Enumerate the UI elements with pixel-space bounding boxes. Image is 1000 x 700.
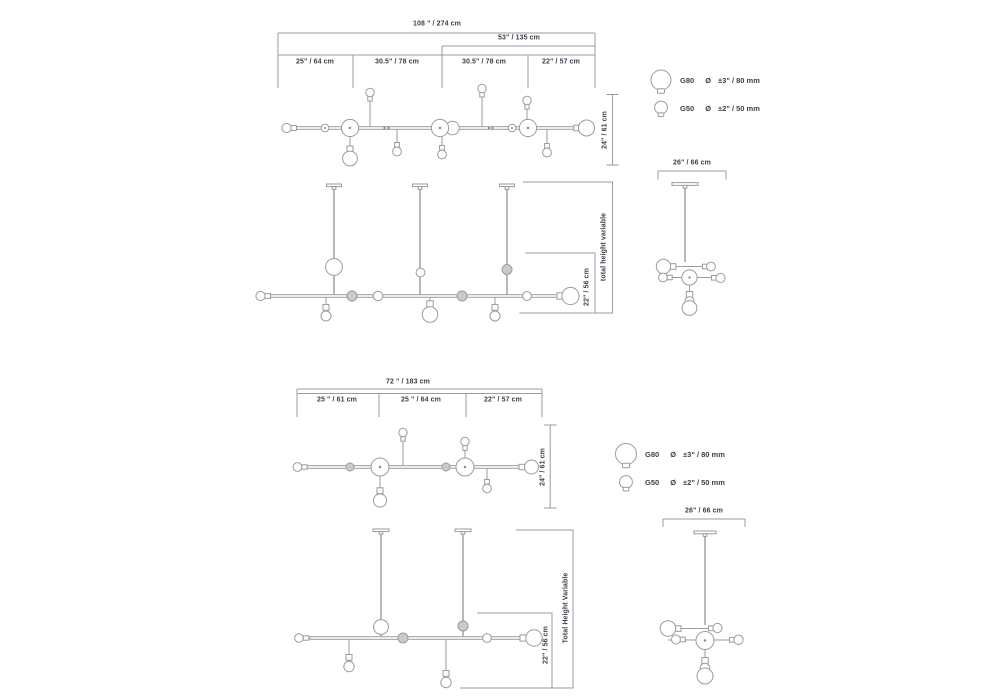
dim-depth-b: 24" / 61 cm: [540, 448, 547, 486]
g50-label: G50: [645, 478, 659, 487]
dim-side-width-a: 26" / 66 cm: [673, 160, 711, 167]
legend-row-g50: G50 Ø ±2" / 50 mm: [645, 476, 725, 488]
g80-size: ±3" / 80 mm: [718, 76, 760, 85]
diameter-symbol: Ø: [670, 478, 676, 487]
dimension-lines-top-a: [278, 33, 619, 165]
dim-drop-b: 22" / 56 cm: [543, 626, 550, 664]
g50-size: ±2" / 50 mm: [683, 478, 725, 487]
dim-segment-b-3: 22" / 57 cm: [484, 397, 522, 404]
dim-height-note-b: Total Height Variable: [563, 573, 570, 644]
dim-segment-a-2: 30.5" / 78 cm: [375, 59, 419, 66]
g50-bulb-icon: [620, 476, 633, 491]
dim-segment-a-3: 30.5" / 78 cm: [462, 59, 506, 66]
dim-segment-a-4: 22" / 57 cm: [542, 59, 580, 66]
side-view-b: [660, 519, 745, 684]
g80-label: G80: [645, 450, 659, 459]
g50-label: G50: [680, 104, 694, 113]
dim-depth-a: 24" / 61 cm: [602, 111, 609, 149]
dimension-lines-top-b: [297, 389, 557, 508]
dim-total-width-a: 108 " / 274 cm: [413, 21, 461, 28]
dim-height-note-a: total height variable: [601, 213, 608, 281]
plan-view-b: [293, 428, 538, 507]
legend-row-g50: G50 Ø ±2" / 50 mm: [680, 102, 760, 114]
technical-drawing-canvas: 108 " / 274 cm 53" / 135 cm 25" / 64 cm …: [0, 0, 1000, 700]
dim-segment-b-2: 25 " / 64 cm: [401, 397, 441, 404]
dim-segment-a-1: 25" / 64 cm: [296, 59, 334, 66]
dim-partial-width-a: 53" / 135 cm: [498, 35, 540, 42]
plan-view-a: [282, 84, 595, 166]
drawing-geometry: [0, 0, 1000, 700]
diameter-symbol: Ø: [670, 450, 676, 459]
dim-segment-b-1: 25 " / 61 cm: [317, 397, 357, 404]
front-elevation-a: [256, 182, 613, 322]
g50-bulb-icon: [655, 101, 668, 116]
g50-size: ±2" / 50 mm: [718, 104, 760, 113]
diameter-symbol: Ø: [705, 76, 711, 85]
g80-bulb-icon: [616, 444, 637, 468]
legend-row-g80: G80 Ø ±3" / 80 mm: [680, 74, 760, 86]
front-elevation-b: [295, 529, 573, 688]
legend-row-g80: G80 Ø ±3" / 80 mm: [645, 448, 725, 460]
dim-side-width-b: 26" / 66 cm: [685, 508, 723, 515]
side-view-a: [656, 171, 726, 315]
diameter-symbol: Ø: [705, 104, 711, 113]
g80-size: ±3" / 80 mm: [683, 450, 725, 459]
g80-bulb-icon: [651, 70, 671, 93]
dim-drop-a: 22" / 56 cm: [584, 268, 591, 306]
dim-total-width-b: 72 " / 183 cm: [386, 379, 430, 386]
g80-label: G80: [680, 76, 694, 85]
